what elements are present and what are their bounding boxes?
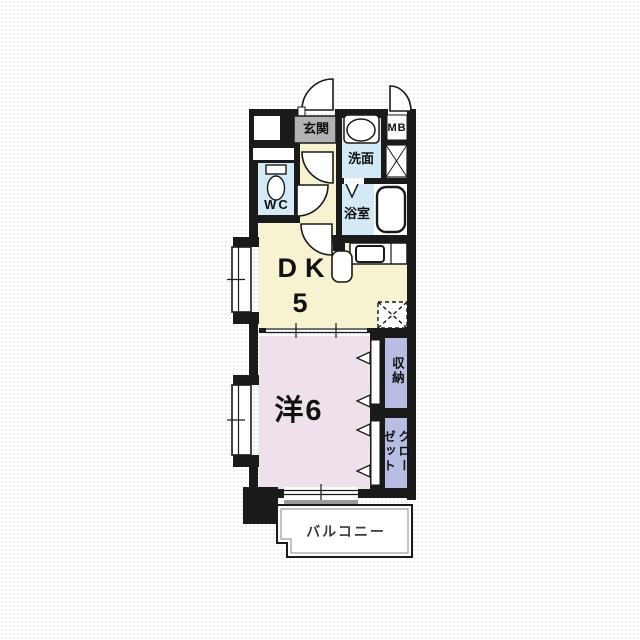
bedroom-window [227,385,251,455]
balcony-label: バルコニー [306,524,386,539]
pipe-shaft-inset [254,116,280,140]
kitchen-unit [332,251,352,282]
entrance-label: 玄関 [303,122,329,136]
balcony-window [284,484,358,505]
storage-label: 収納 [389,357,403,386]
closet-label: クローゼット [380,426,410,478]
dk-size-label: 5 [292,289,307,319]
meter-box-label: MB [387,122,406,134]
wc-label: WC [264,198,290,212]
floorplan-drawing [0,0,640,640]
wc-niche [253,148,294,160]
pipe-space-box [386,145,407,177]
mb-door-arc [390,86,411,111]
dk-window [227,247,251,312]
kitchen-sink [356,246,384,262]
floorplan-canvas: 玄関 洗面 MB WC 浴室 DK 5 洋6 収納 クローゼット バルコニー [0,0,640,640]
bathroom-label: 浴室 [344,207,370,221]
washbasin [344,115,379,143]
dk-label: DK [270,254,333,284]
entrance-door-arc [302,79,333,110]
washroom-label: 洗面 [348,152,374,166]
toilet [266,165,286,200]
western-room-label: 洋6 [274,396,323,428]
bathtub [377,187,405,232]
refrigerator-space [378,302,407,328]
